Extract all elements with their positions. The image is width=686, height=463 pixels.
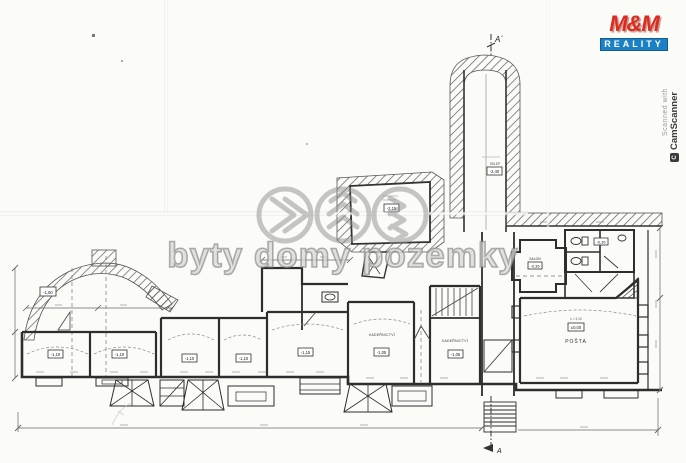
section-line-bottom: A <box>483 396 502 455</box>
level-badge-salon: -0,35 <box>530 264 540 269</box>
level-badge-kadernictvi-1: -1,05 <box>377 350 387 355</box>
section-marker-top: A´ <box>494 35 503 44</box>
paper-fold-horizontal <box>0 211 528 216</box>
room-label-kadernictvi-2: KADEŘNICTVÍ <box>442 338 468 343</box>
paper-fold-vertical <box>164 0 168 214</box>
facade-details <box>36 378 638 432</box>
scanned-with-label: Scanned with <box>662 4 669 162</box>
scan-specks <box>92 34 308 145</box>
section-marker-bottom: A <box>496 448 502 455</box>
level-badge-posta: ±0,00 <box>571 325 582 330</box>
room-label-sklep: SKLEP <box>490 162 500 166</box>
scanned-floorplan-page: SKLEP -2,40 A´ -2,15 <box>0 0 686 463</box>
level-badge-kadernictvi-2: -1,05 <box>451 352 461 357</box>
cellar-room: -2,15 <box>337 172 444 278</box>
paper-fold-vertical-right <box>546 0 550 232</box>
camscanner-icon: C <box>670 153 679 162</box>
brand-name: M&M <box>598 14 670 34</box>
section-line-top: A´ <box>487 34 503 57</box>
camscanner-label: CamScanner <box>669 92 680 150</box>
level-badge-left-wing: -1,60 <box>43 290 53 295</box>
level-badge-room1: -1,10 <box>51 352 61 357</box>
room-label-posta: POŠTA <box>565 338 587 345</box>
brand-logo: M&M REALITY <box>598 14 670 52</box>
dimension-number-marks <box>36 222 656 427</box>
left-curved-wing: -1,60 <box>23 250 178 376</box>
brand-tagline: REALITY <box>600 38 668 51</box>
level-badge-room5: -1,15 <box>301 350 311 355</box>
room-label-kadernictvi-1: KADEŘNICTVÍ <box>369 332 395 337</box>
level-badge-sklep: -2,40 <box>490 169 500 174</box>
room-label-salon: SALON <box>529 257 541 261</box>
level-badge-room4: -1,10 <box>239 356 249 361</box>
level-badge-room3: -1,10 <box>185 356 195 361</box>
camscanner-watermark: Scanned with C CamScanner <box>662 4 686 162</box>
level-badge-room2: -1,10 <box>115 352 125 357</box>
corridor-ramp: SKLEP -2,40 <box>450 55 662 232</box>
level-badge-wc: -0,35 <box>596 240 606 245</box>
room-note-posta-height: v = 3,10 <box>570 317 582 321</box>
floor-plan-svg: SKLEP -2,40 A´ -2,15 <box>0 0 686 463</box>
